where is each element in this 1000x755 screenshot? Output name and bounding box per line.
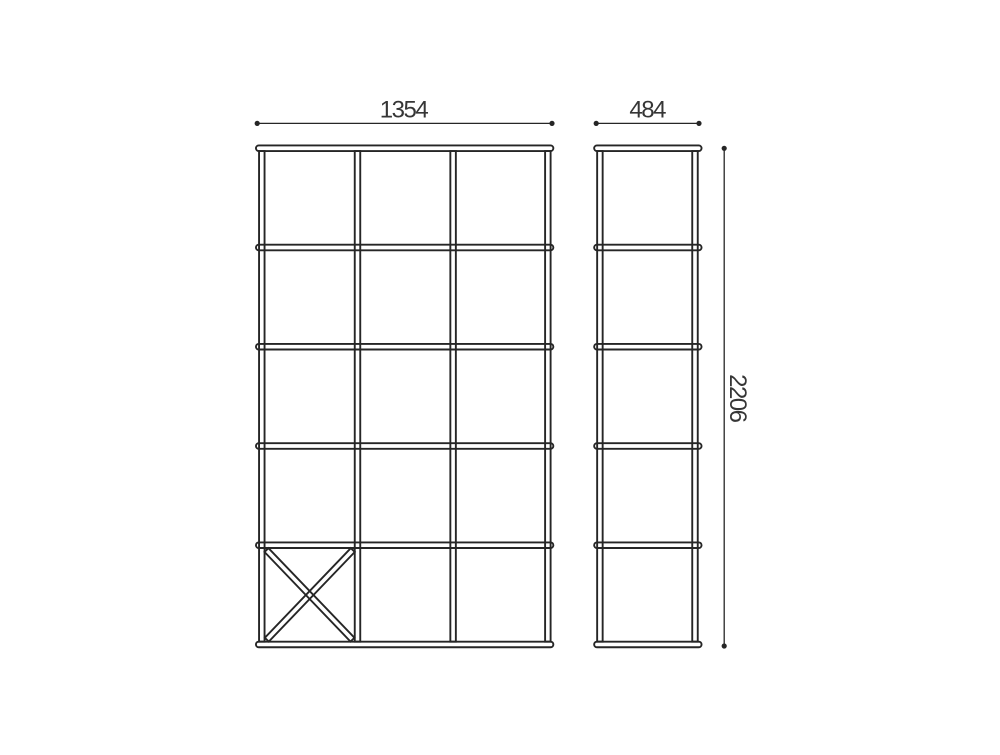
svg-text:484: 484 (629, 97, 666, 124)
svg-text:2206: 2206 (724, 374, 751, 423)
svg-text:1354: 1354 (380, 97, 429, 124)
